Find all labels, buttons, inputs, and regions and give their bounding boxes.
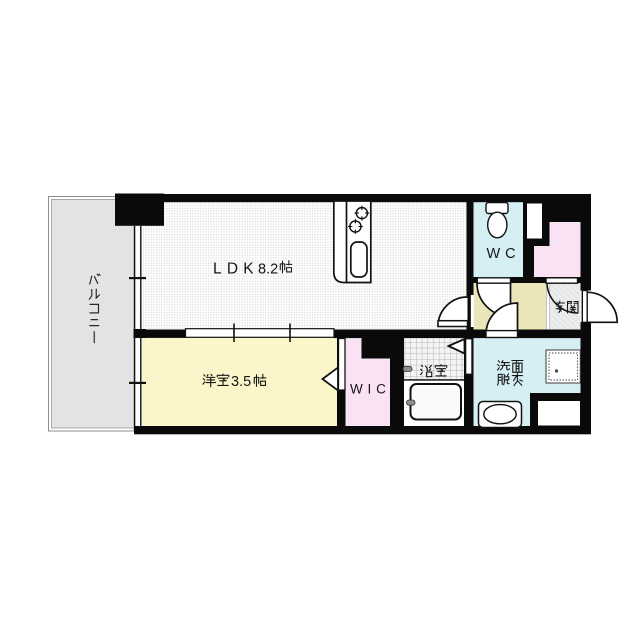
svg-text:3.5: 3.5 <box>231 374 251 390</box>
svg-text:LDK: LDK <box>213 261 259 278</box>
svg-text:WIC: WIC <box>350 382 391 397</box>
svg-text:8.2: 8.2 <box>258 262 278 278</box>
svg-text:WC: WC <box>487 246 521 262</box>
